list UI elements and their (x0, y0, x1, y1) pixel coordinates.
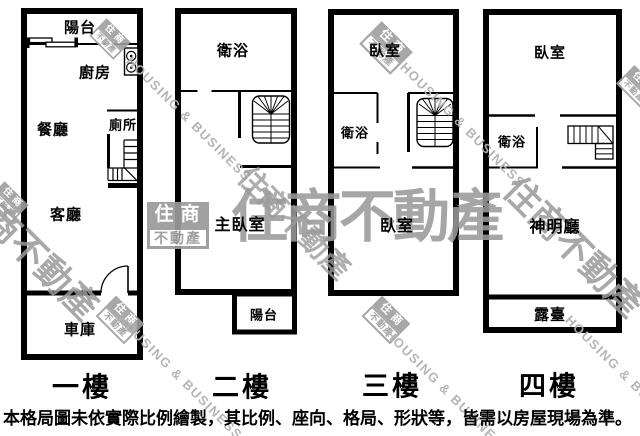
labels-layer: 陽台 廚房 餐廳 廁所 客廳 車庫 衛浴 主臥室 陽台 臥室 衛浴 臥室 臥室 … (0, 0, 640, 436)
room-label-balcony: 陽台 (250, 305, 278, 324)
room-label-bathroom: 衛浴 (341, 123, 369, 142)
floorplan-image: 住商不動產 住商 不動產 住商 不動產 住商 不動產 住商 不動產 住商 不動產… (0, 0, 640, 436)
room-label-master-bedroom: 主臥室 (214, 211, 265, 235)
floor-name-4f: 四樓 (519, 365, 579, 404)
room-label-bathroom: 衛浴 (498, 132, 526, 151)
floor-name-3f: 三樓 (362, 365, 422, 404)
room-label-bedroom: 臥室 (534, 42, 566, 63)
room-label-balcony: 陽台 (64, 17, 96, 38)
room-label-toilet: 廁所 (109, 115, 137, 134)
floor-name-2f: 二樓 (212, 366, 272, 405)
room-label-shrine-hall: 神明廳 (529, 213, 580, 237)
room-label-kitchen: 廚房 (79, 62, 111, 83)
floor-name-1f: 一樓 (52, 366, 112, 405)
disclaimer-text: 本格局圖未依實際比例繪製，其比例、座向、格局、形狀等，皆需以房屋現場為準。 (3, 404, 639, 429)
room-label-living: 客廳 (50, 204, 82, 225)
room-label-bedroom: 臥室 (380, 212, 414, 236)
room-label-terrace: 露臺 (534, 304, 566, 325)
room-label-dining: 餐廳 (37, 119, 69, 140)
room-label-bathroom: 衛浴 (217, 40, 249, 61)
room-label-garage: 車庫 (64, 319, 96, 340)
room-label-bedroom: 臥室 (369, 40, 401, 61)
